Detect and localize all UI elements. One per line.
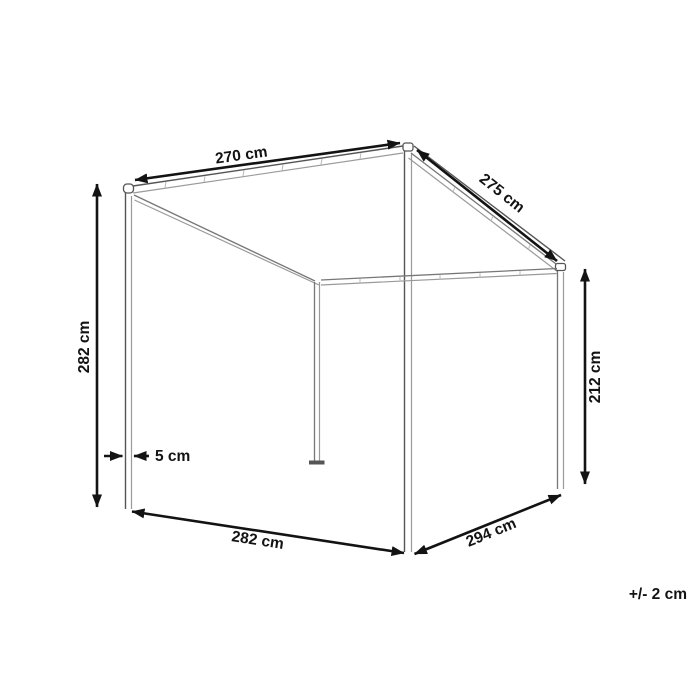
front-left-post-cap	[124, 184, 134, 193]
pergola-dimension-diagram: 270 cm 275 cm 282 cm 212 cm 5 cm	[0, 0, 700, 700]
left-roof-slope-beam	[134, 195, 319, 285]
dim-post-thickness-label: 5 cm	[155, 448, 190, 465]
back-left-post	[309, 282, 325, 465]
dim-bottom-side-depth: 294 cm	[415, 495, 562, 554]
front-right-post	[403, 143, 413, 552]
dim-front-post-height-label: 282 cm	[76, 321, 93, 374]
back-right-post-cap	[556, 264, 566, 271]
front-roof-beam	[133, 146, 403, 193]
dim-roof-slope-depth-label: 275 cm	[476, 170, 528, 216]
front-left-post	[124, 184, 134, 509]
dim-bottom-front-width-label: 282 cm	[230, 528, 285, 553]
right-roof-slope-beam	[409, 146, 566, 272]
back-roof-beam	[321, 269, 557, 286]
back-left-post-foot	[309, 461, 325, 465]
dim-back-post-height-label: 212 cm	[587, 351, 604, 404]
dim-bottom-front-width: 282 cm	[132, 512, 404, 554]
dim-back-post-height: 212 cm	[585, 269, 604, 484]
front-right-post-cap	[403, 143, 413, 151]
diagram-canvas: 270 cm 275 cm 282 cm 212 cm 5 cm	[0, 0, 700, 700]
tolerance-note: +/- 2 cm	[629, 586, 687, 603]
pergola-structure	[124, 143, 566, 552]
dim-top-front-width: 270 cm	[135, 143, 400, 180]
dim-bottom-side-depth-label: 294 cm	[464, 515, 519, 551]
dim-roof-slope-depth: 275 cm	[417, 150, 557, 261]
dim-top-front-width-label: 270 cm	[214, 143, 268, 167]
dimension-annotations: 270 cm 275 cm 282 cm 212 cm 5 cm	[76, 143, 687, 603]
dim-post-thickness: 5 cm	[104, 448, 190, 465]
back-right-post	[556, 264, 566, 490]
dim-front-post-height: 282 cm	[76, 184, 97, 507]
